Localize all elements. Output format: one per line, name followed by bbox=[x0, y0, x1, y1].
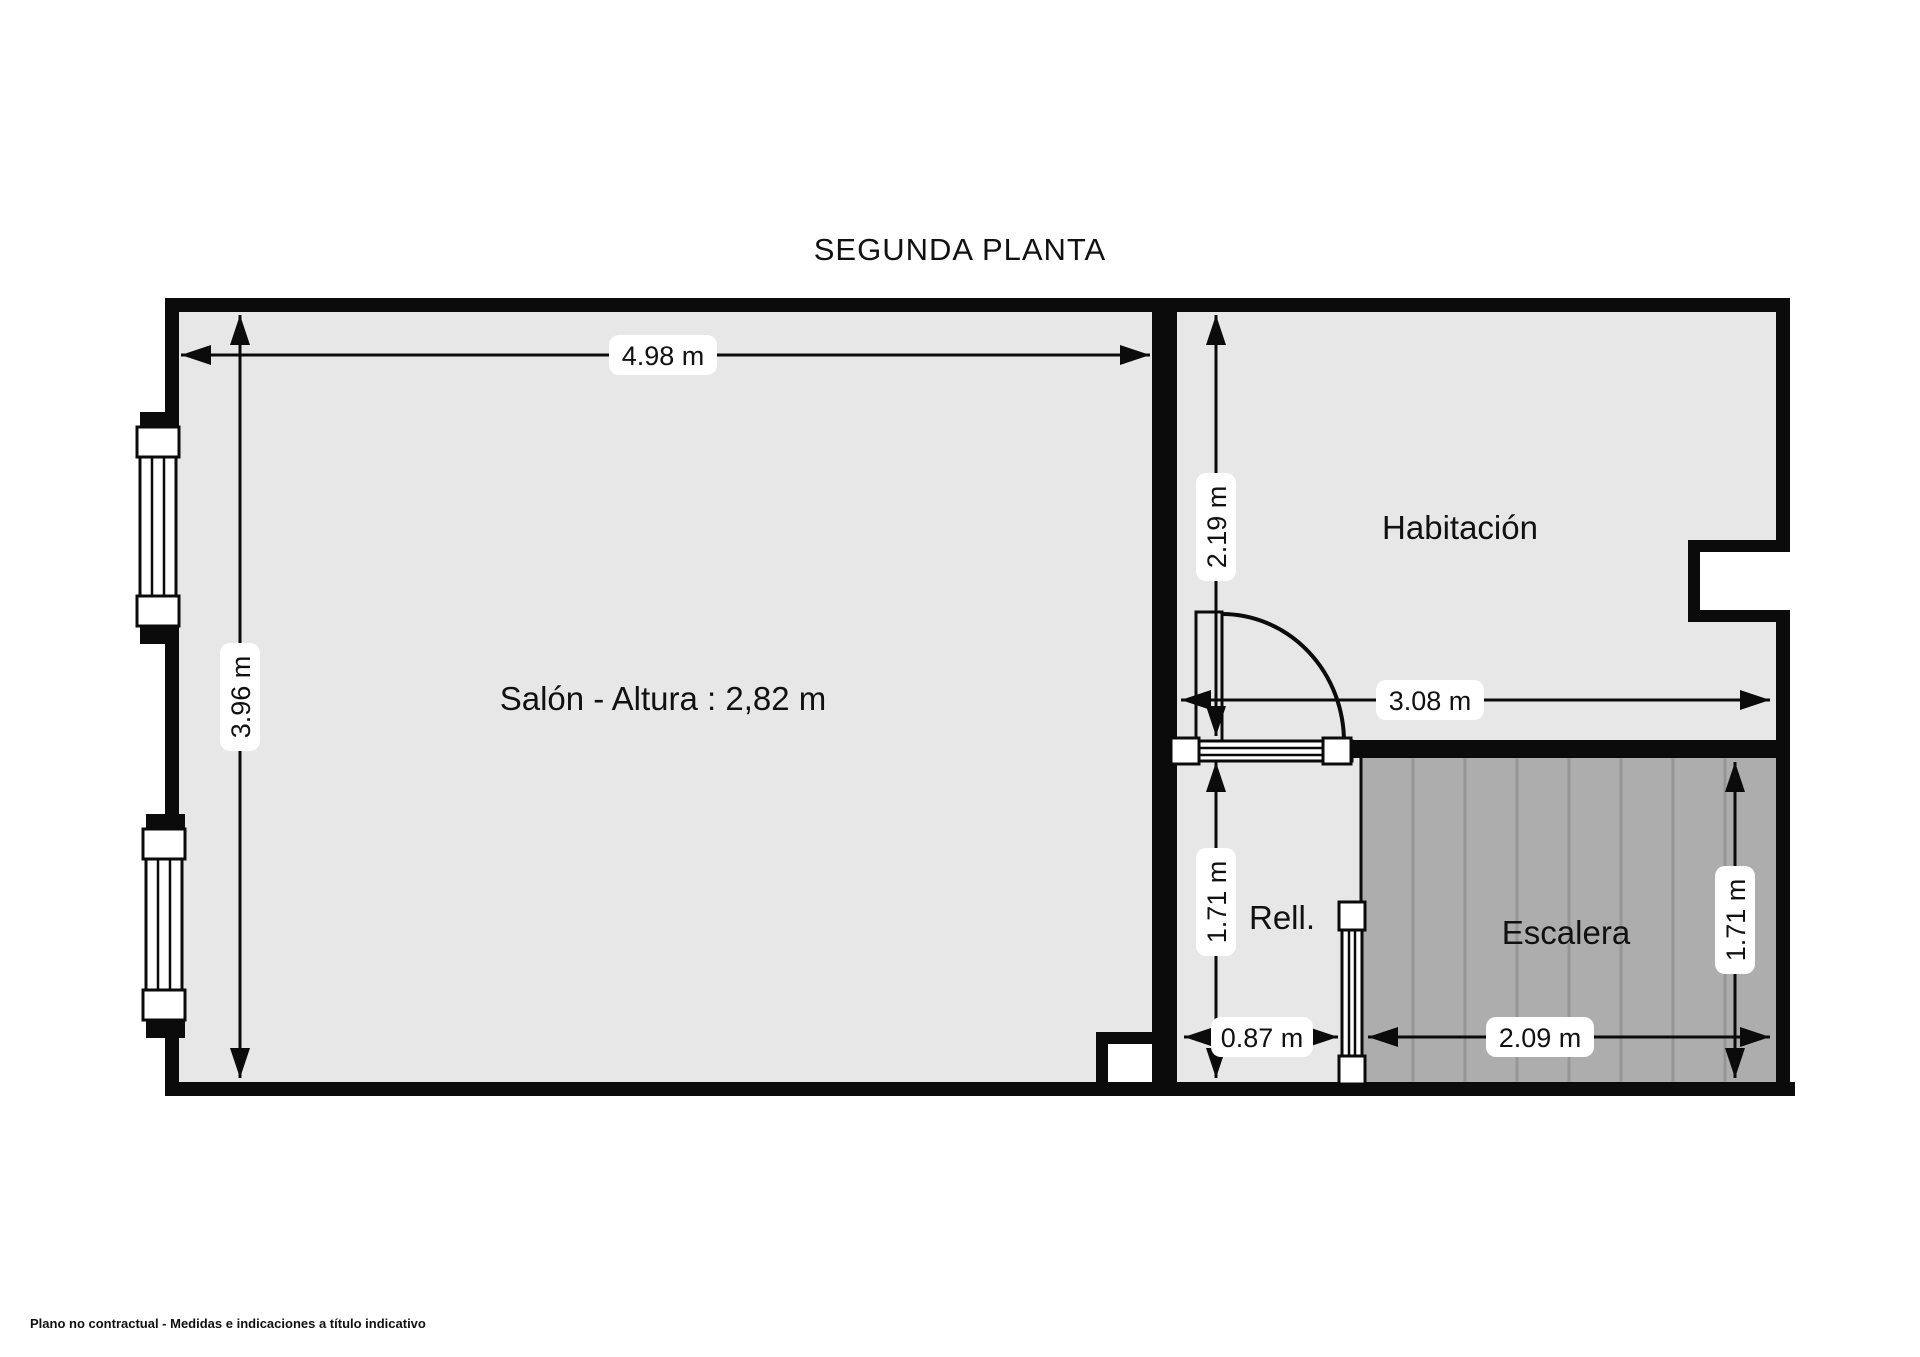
right-wall-lower bbox=[1776, 610, 1790, 1096]
escalera-label: Escalera bbox=[1502, 914, 1631, 951]
right-wall-upper bbox=[1776, 298, 1790, 552]
dim-label-salon-width: 4.98 m bbox=[622, 341, 705, 371]
dim-label-escalera-depth: 1.71 m bbox=[1721, 879, 1751, 962]
window-1-cap-bottom bbox=[137, 596, 179, 626]
window-1-stub-bottom bbox=[140, 626, 179, 644]
dim-label-habitacion-depth: 2.19 m bbox=[1202, 486, 1232, 569]
dim-label-rellano-width: 0.87 m bbox=[1221, 1023, 1304, 1053]
stairs-door-cap-top bbox=[1339, 902, 1365, 930]
rellano-label: Rell. bbox=[1249, 899, 1315, 936]
door-cap-right bbox=[1323, 738, 1351, 764]
salon-label: Salón - Altura : 2,82 m bbox=[500, 680, 827, 717]
top-wall bbox=[165, 298, 1790, 312]
window-2-cap-bottom bbox=[143, 990, 185, 1020]
right-recess-bottom bbox=[1688, 610, 1790, 622]
disclaimer-text: Plano no contractual - Medidas e indicac… bbox=[30, 1316, 426, 1331]
stairs-door-cap-bottom bbox=[1339, 1056, 1365, 1084]
bottom-notch bbox=[1108, 1044, 1152, 1082]
right-recess bbox=[1700, 552, 1790, 610]
stairs-door bbox=[1339, 902, 1365, 1085]
habitacion-bottom-wall bbox=[1350, 740, 1790, 758]
dim-label-habitacion-width: 3.08 m bbox=[1389, 686, 1472, 716]
right-recess-left bbox=[1688, 540, 1700, 622]
plan-title: SEGUNDA PLANTA bbox=[814, 232, 1107, 267]
floor-plan-canvas: 4.98 m 3.96 m 2.19 m 3.08 m bbox=[0, 0, 1920, 1357]
floor-plan-page: 4.98 m 3.96 m 2.19 m 3.08 m bbox=[0, 0, 1920, 1357]
window-2-cap-top bbox=[143, 829, 185, 859]
floors bbox=[172, 305, 1783, 1089]
habitacion-label: Habitación bbox=[1382, 509, 1538, 546]
window-2-stub-bottom bbox=[146, 1020, 185, 1038]
dim-label-rellano-depth: 1.71 m bbox=[1202, 861, 1232, 944]
right-recess-top bbox=[1688, 540, 1790, 552]
bottom-wall bbox=[165, 1082, 1795, 1096]
window-1-cap-top bbox=[137, 427, 179, 457]
dim-label-salon-depth: 3.96 m bbox=[226, 656, 256, 739]
door-cap-left bbox=[1171, 738, 1199, 764]
window-2 bbox=[143, 814, 185, 1038]
window-1 bbox=[137, 412, 179, 644]
interior-wall bbox=[1152, 298, 1177, 1096]
dim-label-escalera-width: 2.09 m bbox=[1499, 1023, 1582, 1053]
